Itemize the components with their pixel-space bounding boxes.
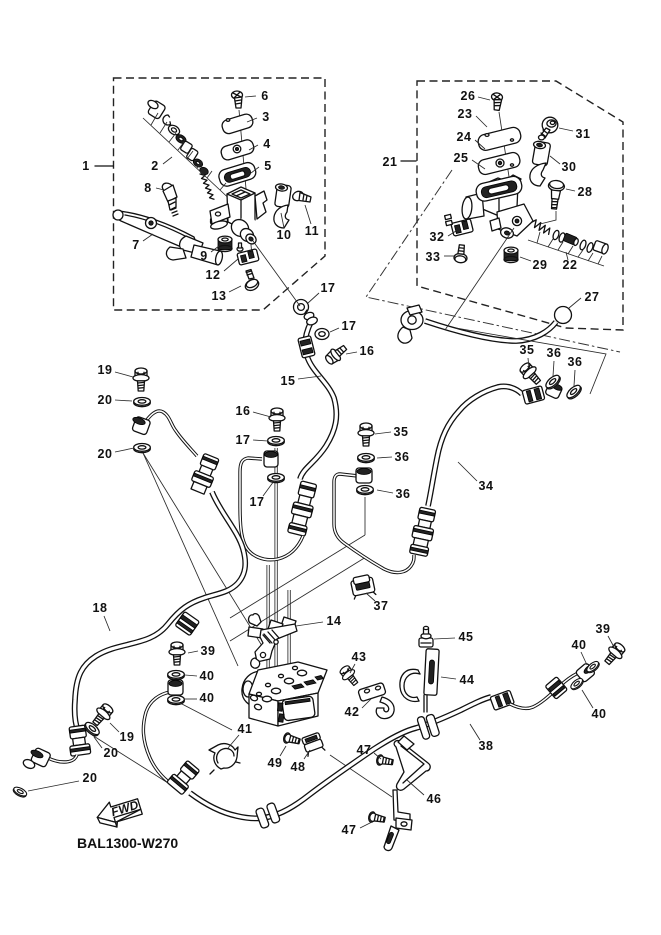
svg-text:20: 20 — [103, 746, 118, 760]
svg-text:18: 18 — [92, 601, 107, 615]
svg-text:49: 49 — [267, 756, 282, 770]
svg-text:9: 9 — [200, 249, 208, 263]
svg-text:45: 45 — [458, 630, 473, 644]
svg-text:3: 3 — [262, 110, 270, 124]
svg-text:27: 27 — [584, 290, 599, 304]
svg-text:16: 16 — [235, 404, 250, 418]
svg-text:17: 17 — [235, 433, 250, 447]
svg-text:23: 23 — [457, 107, 472, 121]
svg-text:15: 15 — [280, 374, 295, 388]
svg-text:22: 22 — [562, 258, 577, 272]
svg-text:35: 35 — [393, 425, 408, 439]
svg-text:48: 48 — [290, 760, 305, 774]
svg-text:47: 47 — [356, 743, 371, 757]
svg-text:4: 4 — [263, 137, 271, 151]
svg-text:6: 6 — [261, 89, 269, 103]
svg-text:20: 20 — [97, 393, 112, 407]
svg-text:26: 26 — [460, 89, 475, 103]
svg-text:1: 1 — [82, 159, 90, 173]
svg-text:40: 40 — [591, 707, 606, 721]
svg-text:40: 40 — [571, 638, 586, 652]
svg-text:44: 44 — [459, 673, 474, 687]
svg-text:28: 28 — [577, 185, 592, 199]
svg-text:35: 35 — [519, 343, 534, 357]
svg-text:12: 12 — [205, 268, 220, 282]
svg-text:17: 17 — [249, 495, 264, 509]
svg-text:47: 47 — [341, 823, 356, 837]
svg-text:29: 29 — [532, 258, 547, 272]
svg-text:16: 16 — [359, 344, 374, 358]
svg-text:19: 19 — [97, 363, 112, 377]
svg-text:41: 41 — [237, 722, 252, 736]
svg-text:34: 34 — [478, 479, 493, 493]
svg-text:11: 11 — [305, 224, 319, 238]
svg-text:38: 38 — [478, 739, 493, 753]
svg-text:25: 25 — [453, 151, 468, 165]
svg-text:42: 42 — [344, 705, 359, 719]
svg-text:21: 21 — [382, 155, 397, 169]
svg-text:37: 37 — [373, 599, 388, 613]
svg-text:40: 40 — [199, 691, 214, 705]
svg-text:31: 31 — [575, 127, 590, 141]
svg-text:36: 36 — [394, 450, 409, 464]
svg-text:32: 32 — [429, 230, 444, 244]
svg-text:33: 33 — [425, 250, 440, 264]
svg-text:7: 7 — [132, 238, 140, 252]
svg-text:BAL1300-W270: BAL1300-W270 — [77, 835, 178, 851]
svg-text:20: 20 — [82, 771, 97, 785]
svg-text:19: 19 — [119, 730, 134, 744]
svg-text:46: 46 — [426, 792, 441, 806]
svg-text:30: 30 — [561, 160, 576, 174]
svg-text:39: 39 — [595, 622, 610, 636]
svg-text:43: 43 — [351, 650, 366, 664]
svg-text:36: 36 — [395, 487, 410, 501]
svg-text:13: 13 — [211, 289, 226, 303]
svg-text:17: 17 — [341, 319, 356, 333]
svg-text:2: 2 — [151, 159, 159, 173]
svg-text:24: 24 — [456, 130, 471, 144]
svg-text:8: 8 — [144, 181, 152, 195]
svg-text:40: 40 — [199, 669, 214, 683]
svg-text:5: 5 — [264, 159, 272, 173]
svg-text:39: 39 — [200, 644, 215, 658]
svg-text:17: 17 — [320, 281, 335, 295]
svg-text:20: 20 — [97, 447, 112, 461]
svg-text:36: 36 — [567, 355, 582, 369]
svg-text:10: 10 — [276, 228, 291, 242]
svg-text:36: 36 — [546, 346, 561, 360]
svg-text:14: 14 — [326, 614, 341, 628]
